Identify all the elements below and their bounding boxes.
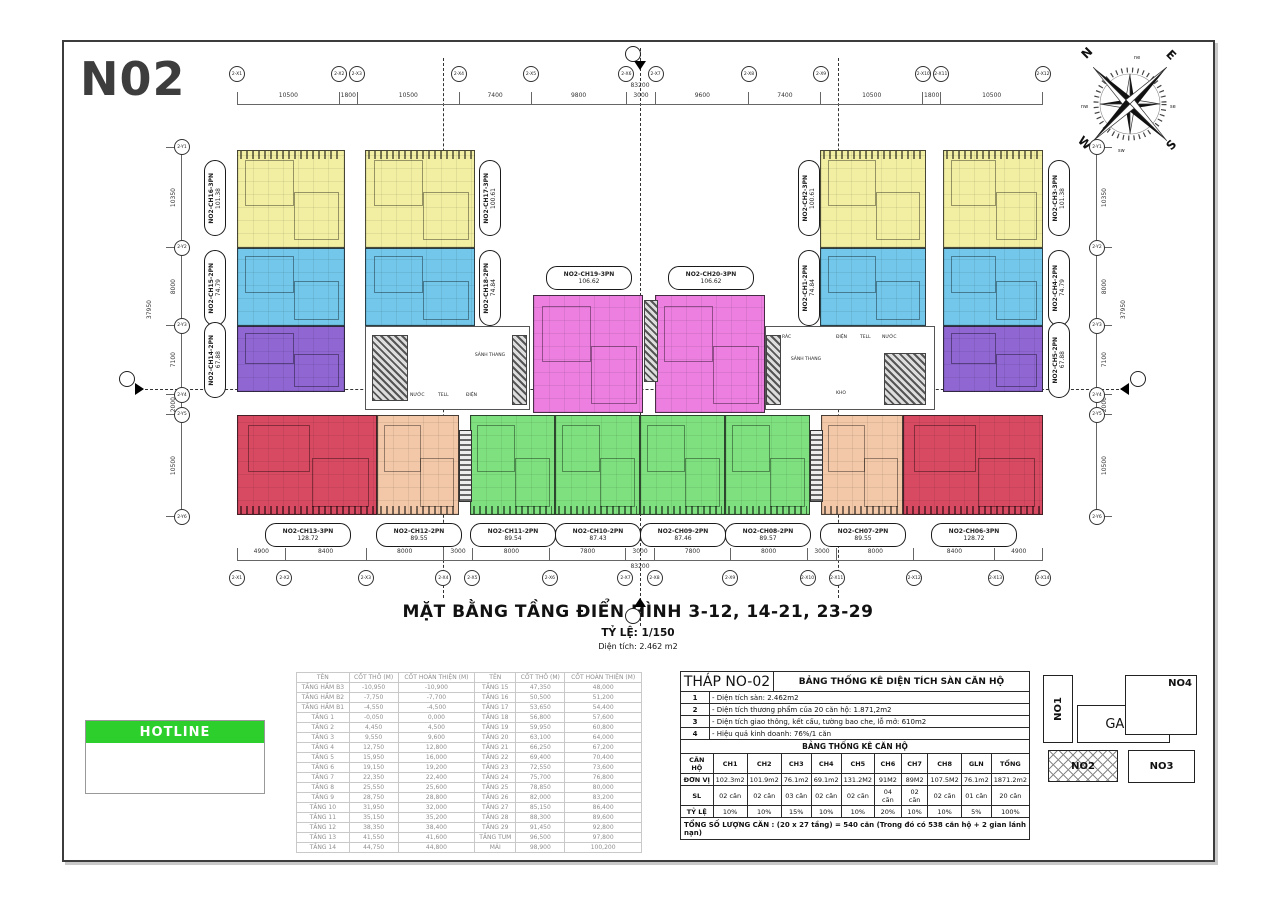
table-cell: -0,050 (349, 713, 398, 723)
unit-area: 74.84 (490, 279, 497, 296)
unit-name: NO2-CH18-2PN (483, 263, 490, 314)
stats-notes-table: 1- Diện tích sàn: 2.462m22- Diện tích th… (680, 691, 1030, 740)
table-row: TẦNG 1031,95032,000TẦNG 2785,15086,400 (297, 803, 642, 813)
unit-name: NO2-CH07-2PN (838, 528, 889, 535)
dimension-label: 10350 (170, 188, 177, 207)
table-cell: TẦNG 5 (297, 753, 350, 763)
unit-stats-table: CĂN HỘCH1CH2CH3CH4CH5CH6CH7CH8GLNTỔNGĐƠN… (680, 753, 1030, 818)
table-cell: 41,550 (349, 833, 398, 843)
dimension-column-right: 10350800071002000105002-Y12-Y22-Y32-Y42-… (1096, 147, 1112, 517)
table-cell: -4,500 (398, 703, 475, 713)
table-cell: TẦNG 10 (297, 803, 350, 813)
table-cell: 89M2 (901, 774, 928, 786)
table-cell: 56,800 (516, 713, 565, 723)
table-cell: 02 căn (928, 786, 961, 806)
table-cell: TẦNG 23 (475, 763, 516, 773)
table-cell: 54,400 (565, 703, 642, 713)
dimension-label: 9800 (571, 92, 586, 99)
hotline-label: HOTLINE (86, 721, 264, 743)
tower-name: THÁP NO-02 (681, 672, 774, 692)
table-cell: 2 (681, 704, 710, 716)
unit-area: 74.79 (215, 279, 222, 296)
table-cell: 67,200 (565, 743, 642, 753)
dimension-label: 1800 (341, 92, 356, 99)
table-cell: 89,600 (565, 813, 642, 823)
dimension-segment: 1800 (340, 92, 358, 104)
section-marker-left (119, 371, 135, 387)
dimension-label: 8000 (397, 548, 412, 555)
dimension-segment: 10500 (237, 92, 340, 104)
grid-bubble: 2-X1 (229, 66, 245, 82)
table-cell: 19,150 (349, 763, 398, 773)
unit-area: 89.54 (504, 535, 521, 542)
unit-area: 89.55 (410, 535, 427, 542)
table-cell: -7,700 (398, 693, 475, 703)
unit-label-no2-ch1: NO2-CH1-2PN74.84 (798, 250, 820, 326)
table-cell: TẦNG 3 (297, 733, 350, 743)
table-row: TẦNG 39,5509,600TẦNG 2063,10064,000 (297, 733, 642, 743)
table-cell: 73,600 (565, 763, 642, 773)
dimension-segment: 3000 (808, 548, 838, 560)
stair-hatch (884, 353, 926, 405)
unit-label-no2-ch18: NO2-CH18-2PN74.84 (479, 250, 501, 326)
unit-name: NO2-CH1-2PN (802, 265, 809, 311)
dimension-label: 4900 (1011, 548, 1026, 555)
table-cell: 35,150 (349, 813, 398, 823)
unit-name: NO2-CH10-2PN (573, 528, 624, 535)
grid-bubble: 2-Y4 (1089, 387, 1105, 403)
dimension-label: 4900 (254, 548, 269, 555)
unit-area: 87.46 (674, 535, 691, 542)
table-cell: 35,200 (398, 813, 475, 823)
table-cell: TẦNG HẦM B3 (297, 683, 350, 693)
unit-area: 106.62 (701, 278, 722, 285)
elevator-shaft-center (644, 300, 658, 382)
table-row: 3- Diện tích giao thông, kết cấu, tường … (681, 716, 1030, 728)
table-cell: 57,600 (565, 713, 642, 723)
table-row: TỶ LỆ10%10%15%10%10%20%10%10%5%100% (681, 806, 1030, 818)
column-header: CỐT THÔ (M) (349, 673, 398, 683)
table-cell: TẦNG 14 (297, 843, 350, 853)
unit-name: NO2-CH08-2PN (743, 528, 794, 535)
section-marker-right (1130, 371, 1146, 387)
table-row: THÁP NO-02 BẢNG THỐNG KÊ DIỆN TÍCH SÀN C… (681, 672, 1030, 692)
table-cell: 66,250 (516, 743, 565, 753)
grid-bubble: 2-X8 (647, 570, 663, 586)
siteplan-building-no4: NO4 (1125, 675, 1197, 735)
unit-no2-ch1 (820, 248, 926, 326)
dimension-label: 10350 (1101, 188, 1108, 207)
dimension-label: 10500 (170, 456, 177, 475)
unit-label-no2-ch20: NO2-CH20-3PN106.62 (668, 266, 754, 290)
dimension-label: 10500 (982, 92, 1001, 99)
dimension-label: 10500 (399, 92, 418, 99)
table-cell: 10% (901, 806, 928, 818)
dimension-segment: 4900 (995, 548, 1043, 560)
dimension-label: 7400 (777, 92, 792, 99)
table-cell: 10% (747, 806, 781, 818)
table-cell: 101.9m2 (747, 774, 781, 786)
unit-name: NO2-CH06-3PN (949, 528, 1000, 535)
table-cell: 41,600 (398, 833, 475, 843)
table-cell: 107.5M2 (928, 774, 961, 786)
unit-stats-title: BẢNG THỐNG KÊ CĂN HỘ (680, 740, 1030, 754)
table-cell: - Diện tích giao thông, kết cấu, tường b… (710, 716, 1030, 728)
table-cell: TẦNG 19 (475, 723, 516, 733)
table-cell: 10% (811, 806, 841, 818)
unit-no2-ch14 (237, 326, 345, 392)
table-cell: 15% (781, 806, 811, 818)
table-cell: 75,700 (516, 773, 565, 783)
dimension-segment: 4900 (237, 548, 286, 560)
compass-se-label: se (1170, 104, 1176, 110)
table-row: TẦNG 1135,15035,200TẦNG 2888,30089,600 (297, 813, 642, 823)
table-cell: 38,350 (349, 823, 398, 833)
building-label: NO2 (1071, 761, 1095, 772)
room-label: KHO (836, 391, 846, 396)
unit-area: 74.79 (1059, 279, 1066, 296)
column-header: CH4 (811, 754, 841, 774)
table-cell: TẦNG 22 (475, 753, 516, 763)
balcony-strip (240, 151, 342, 159)
section-marker-bottom (625, 608, 641, 624)
table-cell: 03 căn (781, 786, 811, 806)
unit-label-no2-ch12: NO2-CH12-2PN89.55 (376, 523, 462, 547)
table-cell: -4,550 (349, 703, 398, 713)
table-row: 1- Diện tích sàn: 2.462m2 (681, 692, 1030, 704)
unit-area: 87.43 (589, 535, 606, 542)
table-cell: TẦNG 2 (297, 723, 350, 733)
table-cell: 20% (875, 806, 902, 818)
grid-bubble: 2-X3 (349, 66, 365, 82)
grid-bubble: 2-Y1 (1089, 139, 1105, 155)
unit-name: NO2-CH17-3PN (483, 173, 490, 224)
elevator-hatch (766, 335, 781, 405)
dimension-segment: 8400 (286, 548, 367, 560)
unit-label-no2-ch07: NO2-CH07-2PN89.55 (820, 523, 906, 547)
table-cell: 76.1m2 (781, 774, 811, 786)
dimension-label: 1800 (924, 92, 939, 99)
table-row: TẦNG 1444,75044,800MÁI98,900100,200 (297, 843, 642, 853)
section-arrow-bottom (634, 598, 646, 607)
table-cell: TẦNG 18 (475, 713, 516, 723)
dimension-segment: 8000 (837, 548, 914, 560)
balcony-strip (643, 506, 722, 514)
table-cell: TẦNG TUM (475, 833, 516, 843)
dimension-segment: 10500 (1097, 415, 1112, 517)
dimension-segment: 7800 (655, 548, 730, 560)
section-arrow-top (634, 61, 646, 70)
unit-no2-ch3 (943, 150, 1043, 248)
dimension-segment: 1800 (923, 92, 941, 104)
header-row: TÊNCỐT THÔ (M)CỐT HOÀN THIỆN (M)TÊNCỐT T… (297, 673, 642, 683)
grid-bubble: 2-X11 (933, 66, 949, 82)
table-cell: 5% (961, 806, 991, 818)
grid-bubble: 2-X8 (741, 66, 757, 82)
room-label: NƯỚC (410, 393, 424, 398)
unit-label-no2-ch11: NO2-CH11-2PN89.54 (470, 523, 556, 547)
grid-bubble: 2-Y2 (174, 240, 190, 256)
compass-ne-label: ne (1134, 55, 1140, 61)
table-cell: 64,000 (565, 733, 642, 743)
dimension-label: 10500 (1101, 456, 1108, 475)
table-cell: TẦNG 4 (297, 743, 350, 753)
dimension-segment: 7100 (166, 326, 181, 395)
balcony-strip (728, 506, 807, 514)
table-cell: TẦNG 28 (475, 813, 516, 823)
grid-bubble: 2-X14 (1035, 570, 1051, 586)
table-cell: 83,200 (565, 793, 642, 803)
dimension-segment: 3000 (626, 548, 656, 560)
dimension-label: 8000 (868, 548, 883, 555)
table-row: TẦNG 1-0,0500,000TẦNG 1856,80057,600 (297, 713, 642, 723)
table-cell: 3 (681, 716, 710, 728)
table-cell: 51,200 (565, 693, 642, 703)
unit-label-no2-ch10: NO2-CH10-2PN87.43 (555, 523, 641, 547)
dimension-label: 7100 (1101, 352, 1108, 367)
unit-name: NO2-CH2-3PN (802, 175, 809, 221)
table-cell: 02 căn (841, 786, 874, 806)
unit-name: NO2-CH13-3PN (283, 528, 334, 535)
unit-label-no2-ch4: NO2-CH4-2PN74.79 (1048, 250, 1070, 326)
grid-bubble: 2-Y5 (174, 407, 190, 423)
table-cell: 02 căn (713, 786, 747, 806)
balcony-strip (946, 151, 1040, 159)
room-label: NƯỚC (882, 335, 896, 340)
table-cell: 96,500 (516, 833, 565, 843)
table-cell: 86,400 (565, 803, 642, 813)
table-cell: 9,550 (349, 733, 398, 743)
stats-footer: TỔNG SỐ LƯỢNG CĂN : (20 x 27 tầng) = 540… (680, 818, 1030, 840)
grid-bubble: 2-X13 (988, 570, 1004, 586)
grid-bubble: 2-X5 (523, 66, 539, 82)
dimension-segment: 8400 (914, 548, 995, 560)
table-cell: 82,000 (516, 793, 565, 803)
table-row: TẦNG 619,15019,200TẦNG 2372,55073,600 (297, 763, 642, 773)
table-cell: 22,400 (398, 773, 475, 783)
siteplan-building-no3: NO3 (1128, 750, 1195, 783)
grid-bubble: 2-X12 (1035, 66, 1051, 82)
table-row: TẦNG HẦM B3-10,950-10,900TẦNG 1547,35048… (297, 683, 642, 693)
table-row: TẦNG 412,75012,800TẦNG 2166,25067,200 (297, 743, 642, 753)
grid-bubble: 2-Y6 (1089, 509, 1105, 525)
dimension-segment: 8000 (1097, 248, 1112, 326)
balcony-strip (240, 506, 374, 514)
unit-no2-ch10 (555, 415, 640, 515)
table-cell: 4,450 (349, 723, 398, 733)
grid-bubble: 2-X1 (229, 570, 245, 586)
dimension-label: 10500 (279, 92, 298, 99)
dimension-label: 3000 (633, 92, 648, 99)
table-cell: TẦNG 7 (297, 773, 350, 783)
unit-area: 100.61 (809, 188, 816, 209)
table-cell: TẦNG 27 (475, 803, 516, 813)
table-row: TẦNG 825,55025,600TẦNG 2578,85080,000 (297, 783, 642, 793)
grid-bubble: 2-Y2 (1089, 240, 1105, 256)
unit-name: NO2-CH4-2PN (1052, 265, 1059, 311)
floor-elevation-table: TÊNCỐT THÔ (M)CỐT HOÀN THIỆN (M)TÊNCỐT T… (296, 672, 642, 853)
plan-area: Diện tích: 2.462 m2 (288, 642, 988, 651)
unit-area: 101.38 (215, 188, 222, 209)
table-row: TẦNG 515,95016,000TẦNG 2269,40070,400 (297, 753, 642, 763)
table-cell: 91,450 (516, 823, 565, 833)
table-cell: 100% (991, 806, 1029, 818)
unit-no2-ch4 (943, 248, 1043, 326)
dimension-row-bottom: 4900840080003000800078003000780080003000… (237, 548, 1043, 561)
table-cell: 1 (681, 692, 710, 704)
balcony-strip (380, 506, 456, 514)
table-cell: TẦNG 13 (297, 833, 350, 843)
unit-no2-ch11 (470, 415, 555, 515)
stair-shaft-right (810, 430, 823, 502)
unit-label-no2-ch2: NO2-CH2-3PN100.61 (798, 160, 820, 236)
dimension-label: 3000 (814, 548, 829, 555)
dimension-label: 3000 (632, 548, 647, 555)
table-cell: TẦNG 26 (475, 793, 516, 803)
table-cell: 72,550 (516, 763, 565, 773)
table-cell: TẦNG 1 (297, 713, 350, 723)
section-arrow-left (135, 383, 144, 395)
unit-area: 101.38 (1059, 188, 1066, 209)
dimension-label: 8400 (947, 548, 962, 555)
balcony-strip (558, 506, 637, 514)
table-cell: TẦNG 17 (475, 703, 516, 713)
table-cell: 10% (713, 806, 747, 818)
table-cell: -10,900 (398, 683, 475, 693)
unit-name: NO2-CH09-2PN (658, 528, 709, 535)
core-right: RÁC SẢNH THANG ĐIỆN TELL NƯỚC KHO (765, 326, 935, 410)
table-cell: TẦNG 24 (475, 773, 516, 783)
table-row: TẦNG HẦM B2-7,750-7,700TẦNG 1650,50051,2… (297, 693, 642, 703)
unit-label-no2-ch09: NO2-CH09-2PN87.46 (640, 523, 726, 547)
unit-name: NO2-CH14-2PN (208, 335, 215, 386)
dimension-label: 8000 (761, 548, 776, 555)
balcony-strip (823, 151, 923, 159)
room-label: RÁC (782, 335, 791, 340)
dimension-label: 7800 (580, 548, 595, 555)
siteplan-building-no1: NO1 (1043, 675, 1073, 743)
unit-no2-ch08 (725, 415, 810, 515)
table-cell: 28,800 (398, 793, 475, 803)
table-cell: TẦNG 11 (297, 813, 350, 823)
unit-no2-ch13 (237, 415, 377, 515)
balcony-strip (368, 151, 472, 159)
table-cell: 10% (841, 806, 874, 818)
column-header: CH3 (781, 754, 811, 774)
grid-bubble: 2-X9 (813, 66, 829, 82)
table-cell: 98,900 (516, 843, 565, 853)
room-label: SẢNH THANG (788, 357, 824, 362)
grid-bubble: 2-X4 (451, 66, 467, 82)
unit-label-no2-ch13: NO2-CH13-3PN128.72 (265, 523, 351, 547)
table-row: TẦNG HẦM B1-4,550-4,500TẦNG 1753,65054,4… (297, 703, 642, 713)
grid-bubble: 2-Y3 (1089, 318, 1105, 334)
table-cell: TẦNG 8 (297, 783, 350, 793)
table-cell: 1871.2m2 (991, 774, 1029, 786)
unit-no2-ch09 (640, 415, 725, 515)
table-cell: 69,400 (516, 753, 565, 763)
table-cell: 85,150 (516, 803, 565, 813)
dimension-segment: 10500 (821, 92, 923, 104)
table-row: 4- Hiệu quả kinh doanh: 76%/1 căn (681, 728, 1030, 740)
table-cell: 50,500 (516, 693, 565, 703)
table-row: TẦNG 1238,35038,400TẦNG 2991,45092,800 (297, 823, 642, 833)
unit-no2-ch06 (903, 415, 1043, 515)
unit-label-no2-ch16: NO2-CH16-3PN101.38 (204, 160, 226, 236)
table-row: ĐƠN VỊ102.3m2101.9m276.1m269.1m2131.2M29… (681, 774, 1030, 786)
table-cell: 92,800 (565, 823, 642, 833)
dimension-segment: 9600 (656, 92, 749, 104)
table-cell: 78,850 (516, 783, 565, 793)
table-row: TẦNG 928,75028,800TẦNG 2682,00083,200 (297, 793, 642, 803)
column-header: CH2 (747, 754, 781, 774)
unit-label-no2-ch08: NO2-CH08-2PN89.57 (725, 523, 811, 547)
unit-area: 67.88 (1059, 351, 1066, 368)
dimension-label: 3000 (450, 548, 465, 555)
unit-name: NO2-CH15-2PN (208, 263, 215, 314)
table-cell: 100,200 (565, 843, 642, 853)
unit-area: 89.57 (759, 535, 776, 542)
unit-no2-ch18 (365, 248, 475, 326)
table-row: SL02 căn02 căn03 căn02 căn02 căn04 căn02… (681, 786, 1030, 806)
dimension-segment: 3000 (627, 92, 657, 104)
table-cell: 63,100 (516, 733, 565, 743)
balcony-strip (824, 506, 900, 514)
dimension-segment: 10500 (941, 92, 1043, 104)
unit-name: NO2-CH20-3PN (686, 271, 737, 278)
dimension-label: 8000 (170, 279, 177, 294)
stair-hatch (372, 335, 408, 401)
unit-area: 67.88 (215, 351, 222, 368)
table-cell: 31,950 (349, 803, 398, 813)
table-cell: 131.2M2 (841, 774, 874, 786)
table-cell: 19,200 (398, 763, 475, 773)
dimension-label: 8000 (1101, 279, 1108, 294)
unit-no2-ch5 (943, 326, 1043, 392)
table-cell: 25,600 (398, 783, 475, 793)
dimension-row-top: 1050018001050074009800300096007400105001… (237, 92, 1043, 105)
table-cell: 38,400 (398, 823, 475, 833)
table-cell: 20 căn (991, 786, 1029, 806)
column-header: CH1 (713, 754, 747, 774)
grid-bubble: 2-Y1 (174, 139, 190, 155)
dimension-segment: 10350 (166, 147, 181, 248)
unit-area: 89.55 (854, 535, 871, 542)
building-label: NO4 (1168, 678, 1192, 689)
table-row: 2- Diện tích thương phẩm của 20 căn hộ: … (681, 704, 1030, 716)
room-label: TELL (860, 335, 871, 340)
unit-no2-ch17 (365, 150, 475, 248)
table-cell: 01 căn (961, 786, 991, 806)
dimension-label: 7800 (685, 548, 700, 555)
unit-label-no2-ch5: NO2-CH5-2PN67.88 (1048, 322, 1070, 398)
section-marker-top (625, 46, 641, 62)
column-header: TÊN (475, 673, 516, 683)
dimension-segment: 7800 (550, 548, 625, 560)
compass-nw-label: nw (1081, 104, 1088, 110)
grid-bubble: 2-Y6 (174, 509, 190, 525)
grid-bubble: 2-X3 (358, 570, 374, 586)
dimension-label: 7100 (170, 352, 177, 367)
dimension-label: 9600 (695, 92, 710, 99)
stair-shaft-left (459, 430, 472, 502)
dimension-segment: 7400 (460, 92, 532, 104)
dimension-segment: 10500 (358, 92, 460, 104)
table-cell: - Diện tích sàn: 2.462m2 (710, 692, 1030, 704)
balcony-strip (906, 506, 1040, 514)
table-cell: 44,750 (349, 843, 398, 853)
table-cell: 25,550 (349, 783, 398, 793)
